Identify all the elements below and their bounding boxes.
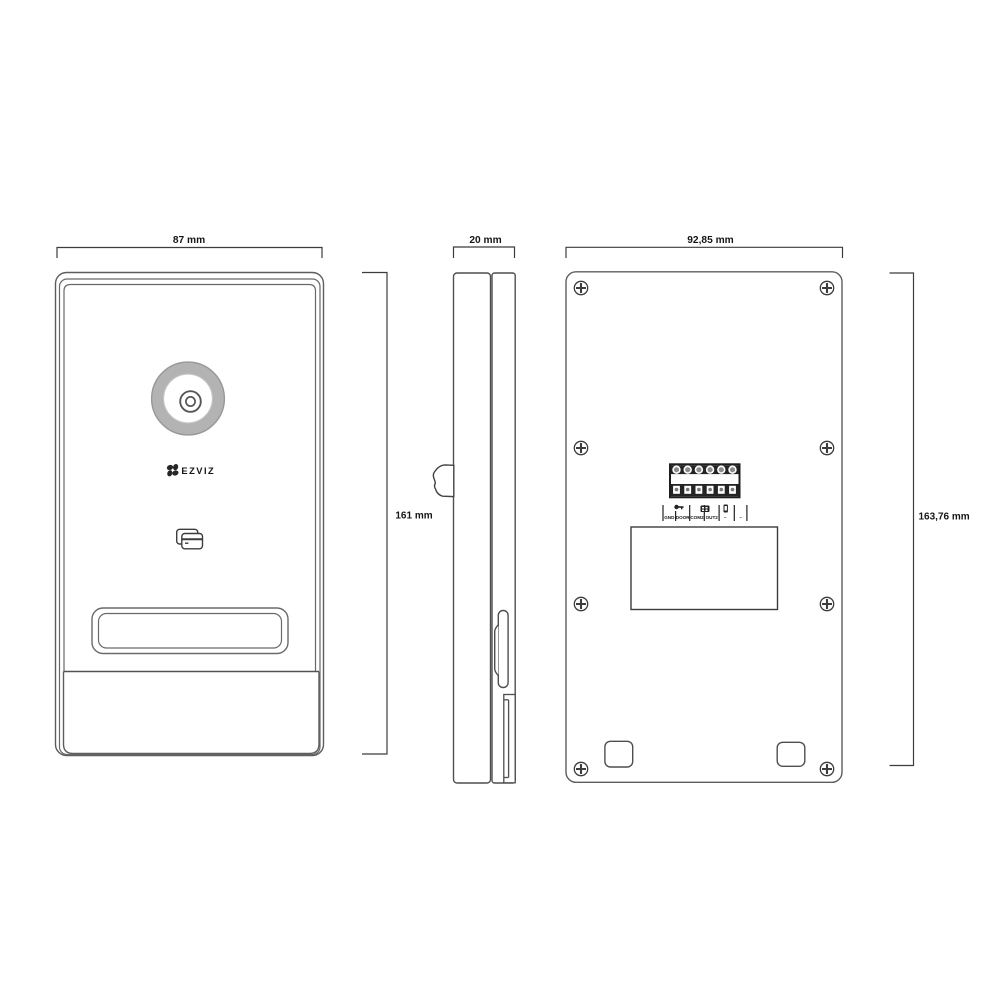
- svg-text:COM2: COM2: [690, 515, 704, 520]
- svg-text:GND: GND: [664, 515, 675, 520]
- svg-text:OUT2: OUT2: [706, 515, 719, 520]
- svg-text:–: –: [724, 515, 727, 520]
- svg-text:87 mm: 87 mm: [173, 235, 205, 246]
- svg-text:92,85 mm: 92,85 mm: [687, 235, 733, 246]
- svg-text:–: –: [739, 515, 742, 520]
- svg-text:DOOR: DOOR: [676, 515, 690, 520]
- svg-text:161 mm: 161 mm: [395, 511, 432, 522]
- svg-text:EZVIZ: EZVIZ: [181, 466, 215, 476]
- svg-text:163,76 mm: 163,76 mm: [919, 512, 970, 523]
- svg-text:20 mm: 20 mm: [469, 235, 501, 246]
